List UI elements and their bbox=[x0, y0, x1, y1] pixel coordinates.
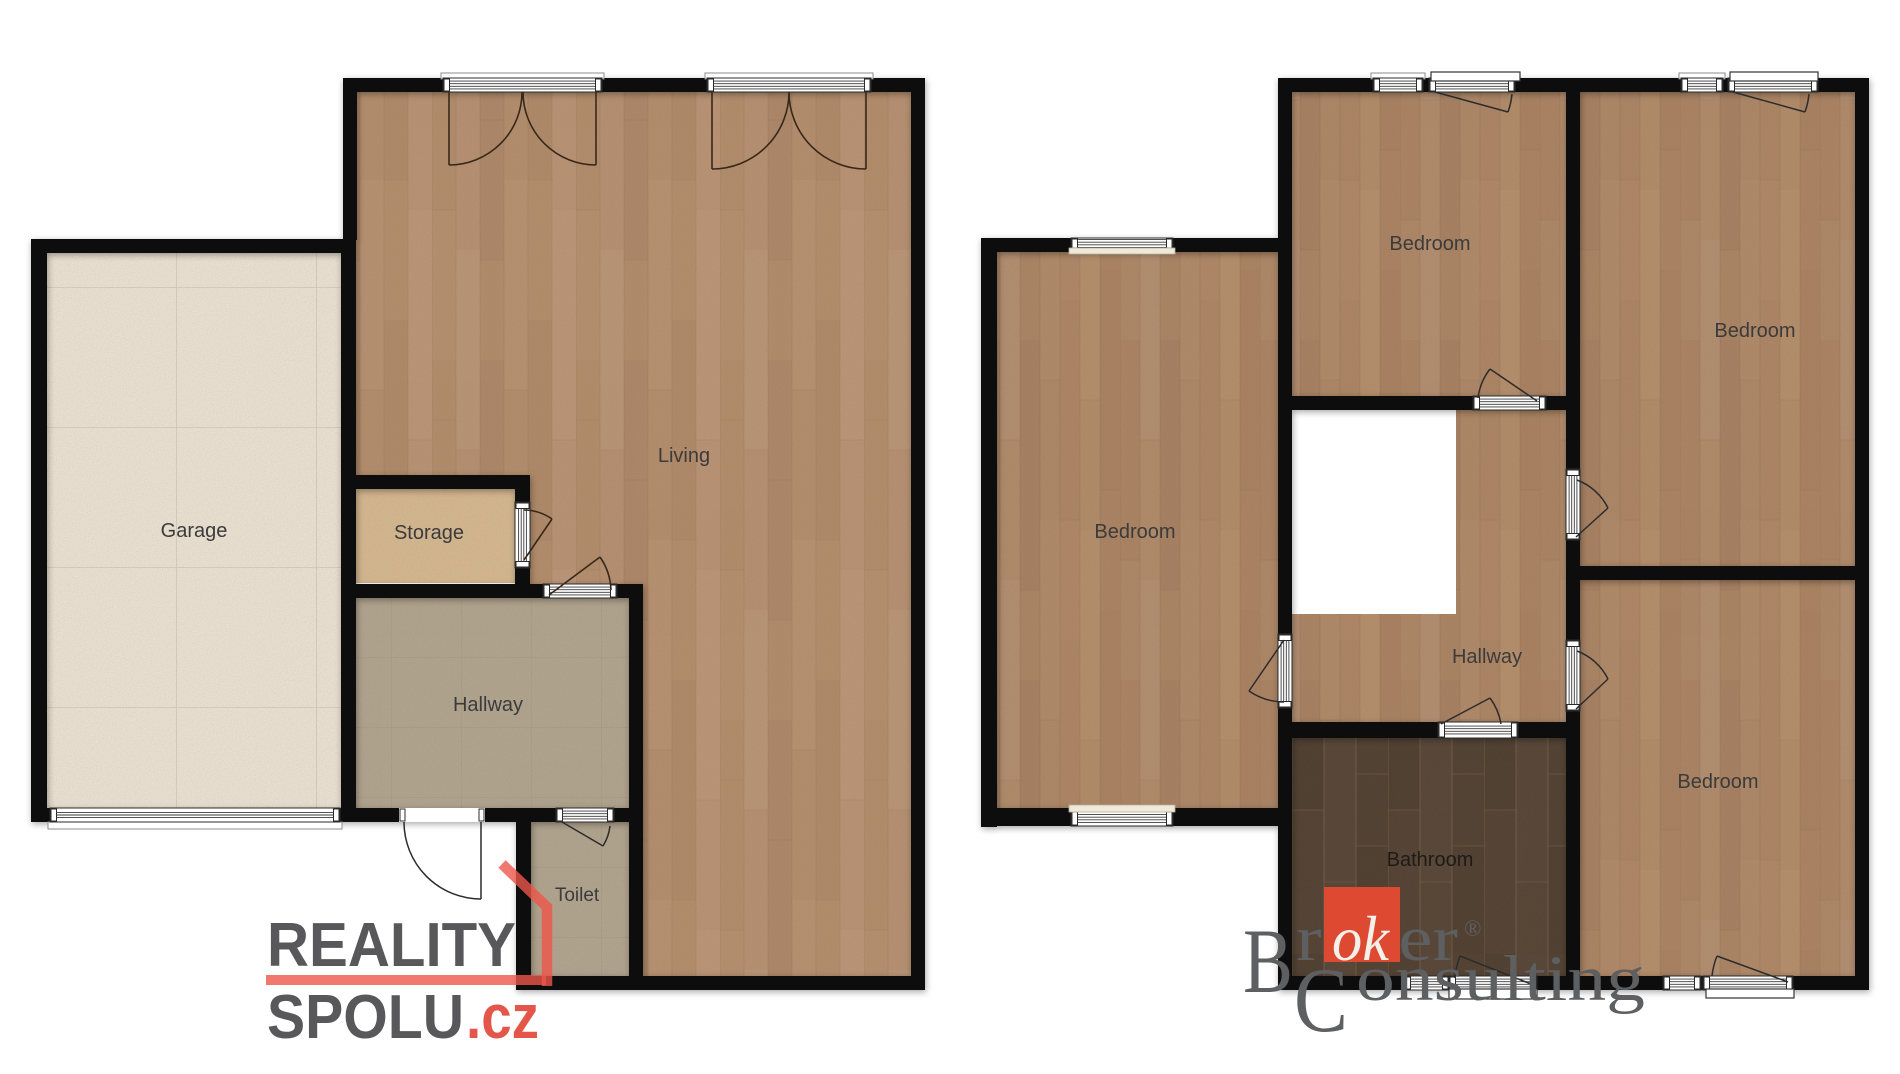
svg-text:.cz: .cz bbox=[466, 983, 539, 1052]
svg-text:SPOLU: SPOLU bbox=[267, 983, 464, 1052]
svg-text:®: ® bbox=[1464, 916, 1481, 941]
svg-text:Bedroom: Bedroom bbox=[1714, 320, 1795, 342]
svg-text:REALITY: REALITY bbox=[267, 911, 516, 980]
svg-text:Garage: Garage bbox=[161, 520, 228, 542]
svg-text:Storage: Storage bbox=[394, 522, 464, 544]
svg-text:Living: Living bbox=[658, 445, 710, 467]
svg-text:Hallway: Hallway bbox=[1452, 646, 1522, 668]
svg-text:B: B bbox=[1243, 910, 1293, 1012]
svg-text:C: C bbox=[1294, 949, 1348, 1051]
svg-text:Toilet: Toilet bbox=[555, 885, 600, 906]
svg-text:Bedroom: Bedroom bbox=[1389, 233, 1470, 255]
svg-text:onsulting: onsulting bbox=[1356, 943, 1645, 1015]
svg-text:Bathroom: Bathroom bbox=[1387, 849, 1474, 871]
svg-text:Bedroom: Bedroom bbox=[1094, 521, 1175, 543]
svg-text:Hallway: Hallway bbox=[453, 694, 523, 716]
svg-text:Bedroom: Bedroom bbox=[1677, 771, 1758, 793]
